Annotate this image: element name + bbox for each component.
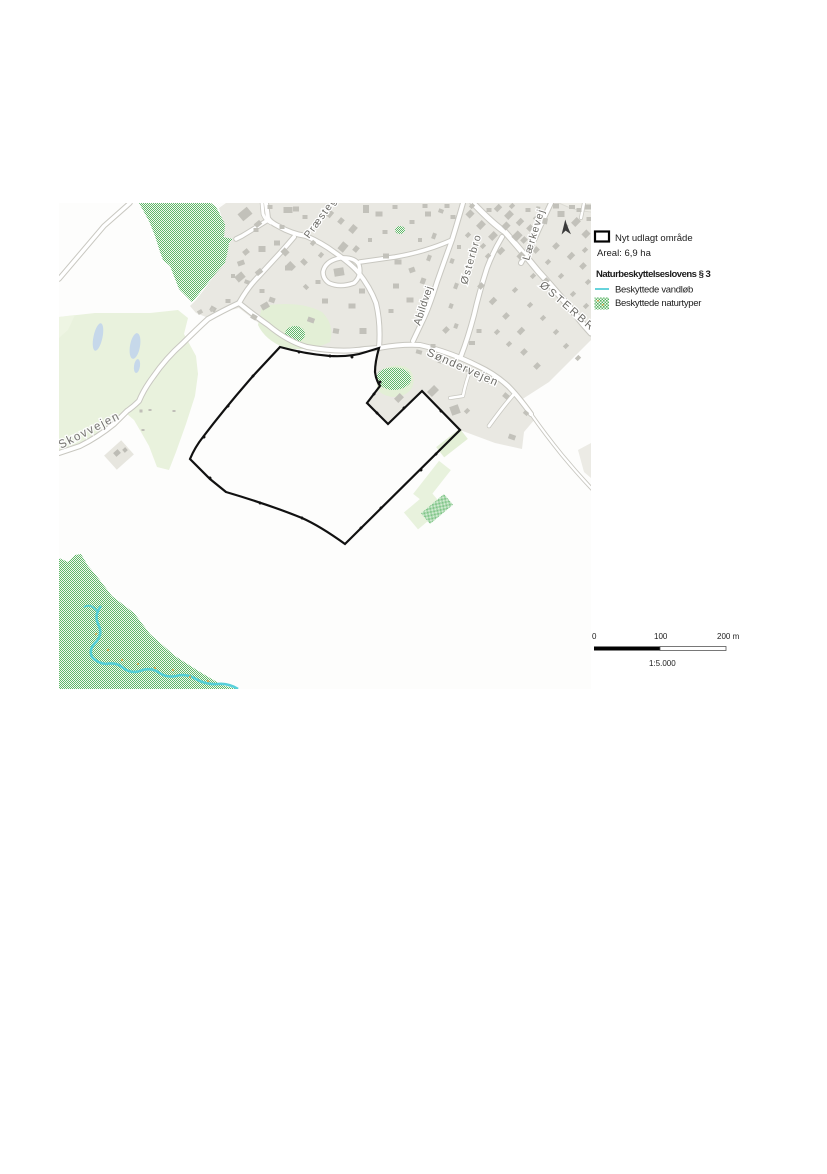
svg-text:Beskyttede naturtyper: Beskyttede naturtyper xyxy=(615,298,701,309)
svg-text:200 m: 200 m xyxy=(717,632,740,641)
svg-text:0: 0 xyxy=(592,632,597,641)
svg-text:Naturbeskyttelseslovens § 3: Naturbeskyttelseslovens § 3 xyxy=(596,269,711,280)
svg-text:Nyt udlagt område: Nyt udlagt område xyxy=(615,233,693,244)
svg-text:Areal: 6,9 ha: Areal: 6,9 ha xyxy=(597,248,652,259)
svg-text:Beskyttede vandløb: Beskyttede vandløb xyxy=(615,285,693,296)
svg-text:100: 100 xyxy=(654,632,668,641)
svg-text:1:5.000: 1:5.000 xyxy=(649,659,676,668)
